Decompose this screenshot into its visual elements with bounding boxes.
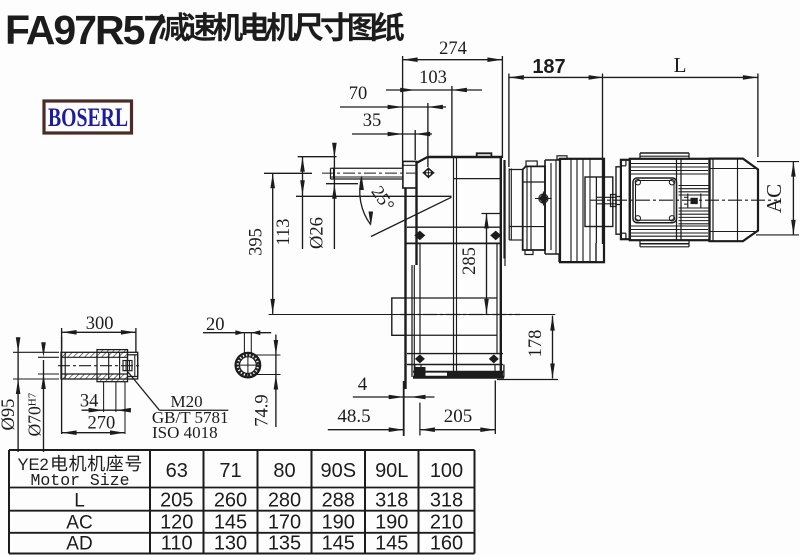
svg-text:AC: AC xyxy=(66,513,92,534)
svg-text:90S: 90S xyxy=(320,460,356,482)
svg-text:210: 210 xyxy=(430,512,463,534)
svg-text:L: L xyxy=(74,491,85,512)
svg-text:285: 285 xyxy=(460,247,480,275)
svg-text:145: 145 xyxy=(375,533,408,555)
svg-text:145: 145 xyxy=(322,533,355,555)
svg-text:Ø26: Ø26 xyxy=(308,217,328,249)
svg-text:FA97R57: FA97R57 xyxy=(5,7,164,53)
svg-text:190: 190 xyxy=(322,512,355,534)
svg-text:113: 113 xyxy=(274,218,294,245)
svg-text:AD: AD xyxy=(66,534,92,555)
svg-text:300: 300 xyxy=(86,314,114,334)
svg-text:63: 63 xyxy=(166,460,188,482)
svg-text:170: 170 xyxy=(268,512,301,534)
svg-text:74.9: 74.9 xyxy=(253,394,273,426)
svg-text:145: 145 xyxy=(214,512,247,534)
svg-text:160: 160 xyxy=(430,533,463,555)
svg-text:BOSERL: BOSERL xyxy=(48,103,128,132)
svg-text:Motor Size: Motor Size xyxy=(30,471,129,490)
svg-text:205: 205 xyxy=(444,406,473,427)
svg-text:103: 103 xyxy=(419,68,447,88)
svg-text:48.5: 48.5 xyxy=(337,406,370,427)
svg-text:260: 260 xyxy=(214,490,247,512)
svg-text:4: 4 xyxy=(358,374,368,395)
svg-text:187: 187 xyxy=(532,56,565,78)
svg-text:100: 100 xyxy=(430,460,463,482)
svg-text:ISO 4018: ISO 4018 xyxy=(152,423,218,442)
svg-text:130: 130 xyxy=(214,533,247,555)
svg-text:110: 110 xyxy=(161,533,193,555)
svg-text:274: 274 xyxy=(439,39,467,59)
svg-text:AC: AC xyxy=(762,184,786,213)
svg-text:135: 135 xyxy=(268,533,301,555)
svg-text:190: 190 xyxy=(375,512,408,534)
svg-text:20: 20 xyxy=(206,315,225,335)
svg-text:395: 395 xyxy=(247,228,267,256)
svg-text:35: 35 xyxy=(363,111,382,131)
svg-text:70: 70 xyxy=(349,84,368,104)
svg-text:288: 288 xyxy=(322,490,355,512)
svg-text:318: 318 xyxy=(430,490,463,512)
svg-text:280: 280 xyxy=(268,490,301,512)
svg-text:80: 80 xyxy=(273,460,295,482)
svg-text:90L: 90L xyxy=(375,460,408,482)
svg-text:Ø95: Ø95 xyxy=(0,399,19,431)
svg-text:71: 71 xyxy=(219,460,241,482)
svg-text:178: 178 xyxy=(526,330,546,358)
svg-text:205: 205 xyxy=(160,490,193,512)
svg-text:120: 120 xyxy=(160,512,193,534)
svg-text:318: 318 xyxy=(375,490,408,512)
svg-text:L: L xyxy=(674,53,687,77)
